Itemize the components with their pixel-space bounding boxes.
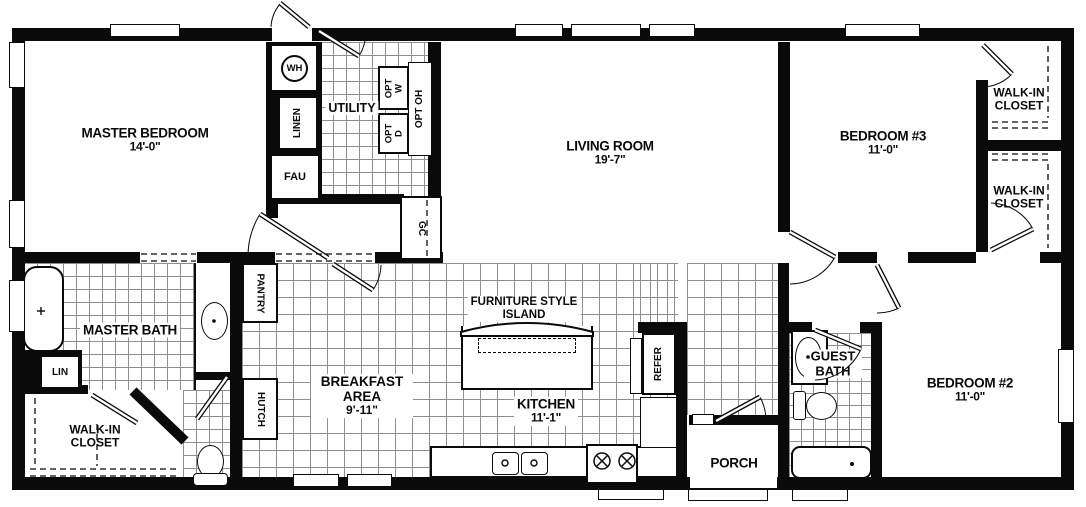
- kitchen-island: [461, 326, 593, 390]
- opt-oh-label: OPT OH: [415, 90, 425, 128]
- bedroom2-left-wall: [871, 322, 882, 478]
- master-bedroom-name: MASTER BEDROOM: [81, 126, 208, 141]
- utility-bottom-wall: [318, 194, 404, 204]
- bedroom3-name: BEDROOM #3: [840, 129, 926, 144]
- window-living-3: [649, 24, 695, 37]
- linen-cabinet: LINEN: [278, 96, 318, 150]
- bath-divider-wall: [230, 263, 242, 478]
- master-sink: [201, 302, 228, 340]
- lin-cabinet: LIN: [40, 355, 80, 389]
- island-label-line1: FURNITURE STYLE: [471, 296, 578, 309]
- living-room-name: LIVING ROOM: [566, 139, 653, 154]
- master-toilet-base: [193, 473, 228, 486]
- master-bath-name: MASTER BATH: [80, 322, 180, 337]
- counter-below-refer: [640, 397, 677, 448]
- entry-stub-wall: [266, 204, 278, 218]
- breakfast-floor-refer-top: [640, 263, 678, 322]
- porch-name: PORCH: [710, 455, 757, 470]
- window-breakfast-1: [293, 474, 339, 487]
- range: [586, 444, 638, 484]
- master-tub: [23, 266, 64, 352]
- kitchen-dim: 11'-1": [517, 412, 575, 425]
- closet2-door-leaf: [991, 229, 1033, 250]
- closet-divider-wall: [976, 140, 1072, 151]
- breakfast-dim: 9'-11": [314, 404, 410, 417]
- gc-closet: GC: [400, 196, 442, 260]
- pantry-cabinet: PANTRY: [242, 263, 278, 323]
- island-label-line2: ISLAND: [471, 309, 578, 322]
- lin-label: LIN: [52, 367, 68, 378]
- guest-tub: [791, 446, 872, 479]
- porch-door-sidelite: [692, 414, 714, 425]
- island-label: FURNITURE STYLE ISLAND: [468, 296, 581, 322]
- walkin-closet-mid-name: WALK-IN CLOSET: [993, 184, 1044, 211]
- wh-label: WH: [287, 63, 303, 74]
- walkin-closet-top-label: WALK-IN CLOSET: [986, 87, 1052, 114]
- mid-wall-a: [12, 252, 140, 263]
- opt-w-line2: W: [394, 78, 404, 98]
- master-closet-label: WALK-IN CLOSET: [62, 424, 128, 451]
- pantry-label: PANTRY: [255, 273, 266, 313]
- opt-w-line1: OPT: [384, 78, 394, 98]
- porch-guest-wall: [778, 263, 789, 478]
- bedroom3-dim: 11'-0": [840, 144, 926, 157]
- front-door-opening: [272, 28, 312, 41]
- breakfast-floor-east: [687, 263, 778, 415]
- guest-step: [792, 489, 848, 501]
- opt-washer: OPTW: [378, 66, 409, 110]
- breakfast-label: BREAKFAST AREA 9'-11": [311, 374, 413, 418]
- water-heater: WH: [281, 55, 308, 82]
- master-bedroom-label: MASTER BEDROOM 14'-0": [81, 126, 208, 155]
- refer-door-panel: [630, 338, 642, 394]
- mid-wall-d: [838, 252, 877, 263]
- kitchen-label: KITCHEN 11'-1": [514, 397, 578, 426]
- kitchen-counter: [430, 446, 678, 478]
- outer-wall-bottom: [12, 477, 1074, 490]
- hutch-cabinet: HUTCH: [242, 378, 278, 440]
- fau-closet: FAU: [270, 154, 320, 200]
- kitchen-name: KITCHEN: [517, 397, 575, 412]
- walkin-closet-mid-label: WALK-IN CLOSET: [986, 185, 1052, 212]
- window-living-1: [515, 24, 563, 37]
- living-right-wall: [778, 42, 790, 232]
- kitchen-sink-left: [492, 452, 519, 475]
- guest-bath-label: GUEST BATH: [804, 349, 862, 378]
- window-master-left-1: [9, 42, 25, 88]
- floor-plan: WH LINEN FAU OPT OH OPTW OPTD GC PANTRY …: [0, 0, 1086, 507]
- mid-wall-b: [197, 252, 275, 263]
- window-master-left-2: [9, 200, 25, 248]
- kitchen-sink-right: [521, 452, 548, 475]
- opt-oh-area: OPT OH: [408, 62, 432, 156]
- opt-dryer: OPTD: [378, 113, 409, 154]
- window-master-bedroom-top: [110, 24, 180, 37]
- front-door-leaf: [280, 3, 309, 27]
- bedroom2-door-leaf: [877, 265, 899, 308]
- gc-label: GC: [416, 221, 427, 236]
- breakfast-name: BREAKFAST AREA: [321, 374, 404, 404]
- refer-label: REFER: [654, 347, 664, 381]
- guest-toilet-tank: [793, 391, 806, 420]
- island-dashed-leaf: [478, 338, 576, 353]
- hutch-label: HUTCH: [255, 392, 266, 427]
- window-bedroom3-top: [845, 24, 920, 37]
- fau-label: FAU: [284, 171, 306, 183]
- bedroom2-name: BEDROOM #2: [927, 376, 1013, 391]
- mid-wall-f: [1040, 252, 1061, 263]
- bedroom3-door-leaf: [790, 232, 835, 257]
- refer-top-bar: [638, 322, 685, 333]
- window-bedroom2-right: [1058, 349, 1074, 423]
- living-room-label: LIVING ROOM 19'-7": [566, 139, 653, 168]
- window-breakfast-2: [347, 474, 392, 487]
- porch-label: PORCH: [710, 455, 757, 470]
- utility-label: UTILITY: [325, 101, 378, 115]
- porch-step: [688, 489, 768, 501]
- opt-d-line1: OPT: [384, 124, 394, 144]
- window-living-2: [571, 24, 641, 37]
- bedroom2-label: BEDROOM #2 11'-0": [927, 376, 1013, 405]
- bath-wc-wall: [195, 372, 242, 380]
- master-bath-label: MASTER BATH: [80, 322, 180, 337]
- master-bedroom-dim: 14'-0": [81, 141, 208, 154]
- walkin-closet-top-name: WALK-IN CLOSET: [993, 86, 1044, 113]
- window-bath-left: [9, 280, 25, 332]
- refrigerator: REFER: [642, 333, 676, 395]
- mid-wall-e: [908, 252, 976, 263]
- master-closet-name: WALK-IN CLOSET: [69, 423, 120, 450]
- opt-d-line2: D: [394, 124, 404, 144]
- range-bumpout: [598, 489, 664, 500]
- living-room-dim: 19'-7": [566, 154, 653, 167]
- closet1-door-leaf: [983, 45, 1012, 74]
- linen-label: LINEN: [293, 108, 303, 138]
- utility-name: UTILITY: [325, 101, 378, 115]
- bedroom3-label: BEDROOM #3 11'-0": [840, 129, 926, 158]
- guest-bath-name: GUEST BATH: [811, 348, 856, 378]
- guest-toilet-bowl: [806, 392, 837, 420]
- bedroom2-dim: 11'-0": [927, 391, 1013, 404]
